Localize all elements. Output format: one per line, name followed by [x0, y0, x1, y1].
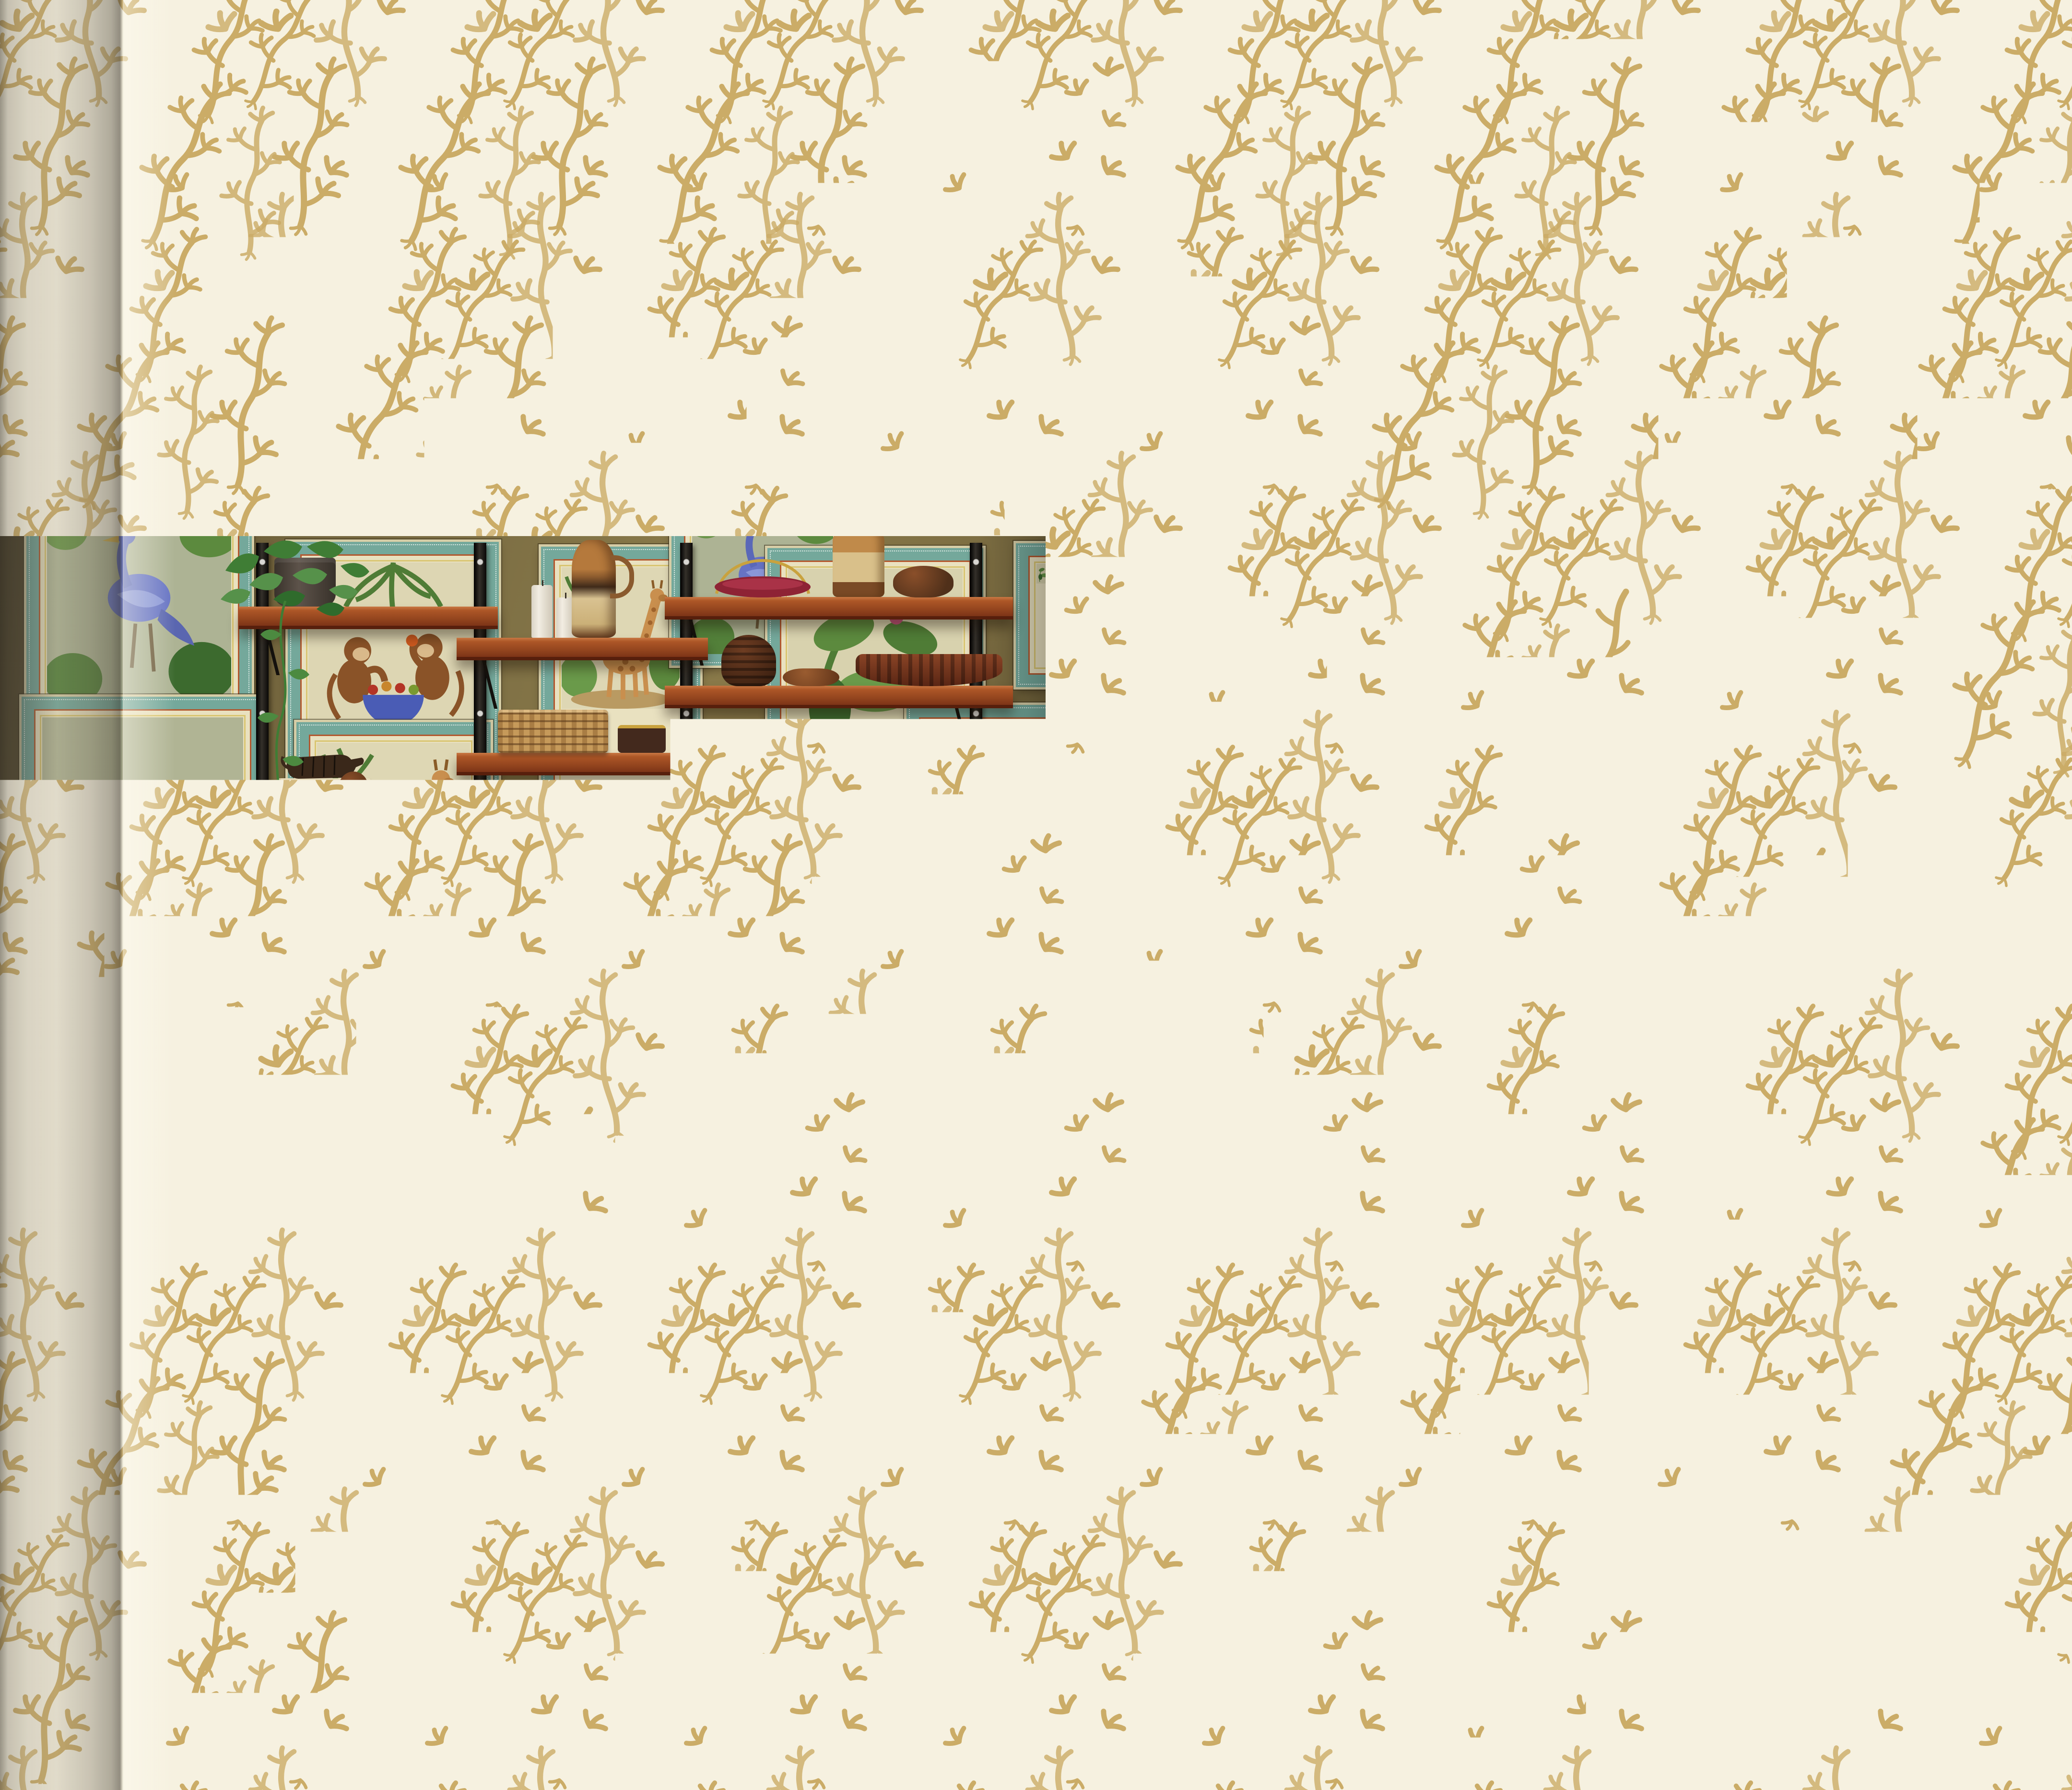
shelf-board — [457, 638, 708, 660]
shelf-board — [457, 753, 708, 775]
brass-cup — [855, 948, 882, 971]
tiger-artwork — [42, 717, 243, 959]
small-brown-jug — [339, 772, 368, 803]
frame-mat — [34, 709, 251, 890]
oxalis-plant — [850, 1088, 1003, 1207]
leather-canister — [618, 725, 666, 753]
room-photo-inset — [0, 536, 1046, 1342]
oxalis-plant — [472, 782, 597, 866]
wooden-bowl — [893, 566, 954, 597]
spider-plant — [681, 982, 878, 1078]
grapes — [530, 1176, 631, 1259]
grapes-cluster — [516, 1167, 663, 1261]
frame-mat — [948, 1240, 1046, 1342]
framed-print-tiger — [22, 697, 264, 903]
wallpaper-mockup — [0, 0, 2072, 1790]
brass-table-pedestal — [569, 1298, 613, 1342]
chair-front-leg-left — [191, 1159, 207, 1342]
red-dish-wire-carrier — [711, 536, 814, 598]
yellow-mug — [17, 1099, 62, 1146]
chair-arm-knob-right — [551, 1141, 575, 1165]
ridged-wooden-jar — [721, 635, 776, 686]
chair-arm-knob-left — [305, 1138, 329, 1162]
fluted-wooden-bowl — [856, 654, 1002, 686]
cabinet-top — [0, 1144, 129, 1161]
gourd-vases — [792, 939, 838, 971]
framed-print-edge-sliver — [1016, 543, 1046, 687]
desk-clock — [720, 912, 796, 979]
pothos-vine — [242, 601, 314, 867]
wicker-box — [498, 710, 608, 753]
ombre-stoneware-jug — [572, 540, 616, 638]
frame-mat — [1028, 556, 1046, 675]
shelf-board — [665, 1256, 1013, 1279]
shelf-rail — [680, 543, 693, 1334]
candle-wick — [542, 580, 543, 586]
pillar-candle — [556, 597, 574, 638]
shelf-board — [665, 597, 1013, 620]
teak-cabinet — [0, 1150, 125, 1342]
glazed-tan-vase — [833, 536, 884, 597]
butterfly-specimen-frame — [724, 750, 863, 856]
shelf-board — [665, 686, 1013, 708]
clock-face — [724, 916, 785, 967]
chair-front-rail — [162, 1282, 560, 1301]
rhino-figurine — [890, 914, 1002, 971]
candle-wick — [565, 593, 566, 598]
pillar-candle — [531, 585, 553, 638]
wooden-dish — [783, 668, 839, 686]
palm-artwork — [1036, 564, 1046, 584]
crane-artwork — [47, 536, 231, 701]
